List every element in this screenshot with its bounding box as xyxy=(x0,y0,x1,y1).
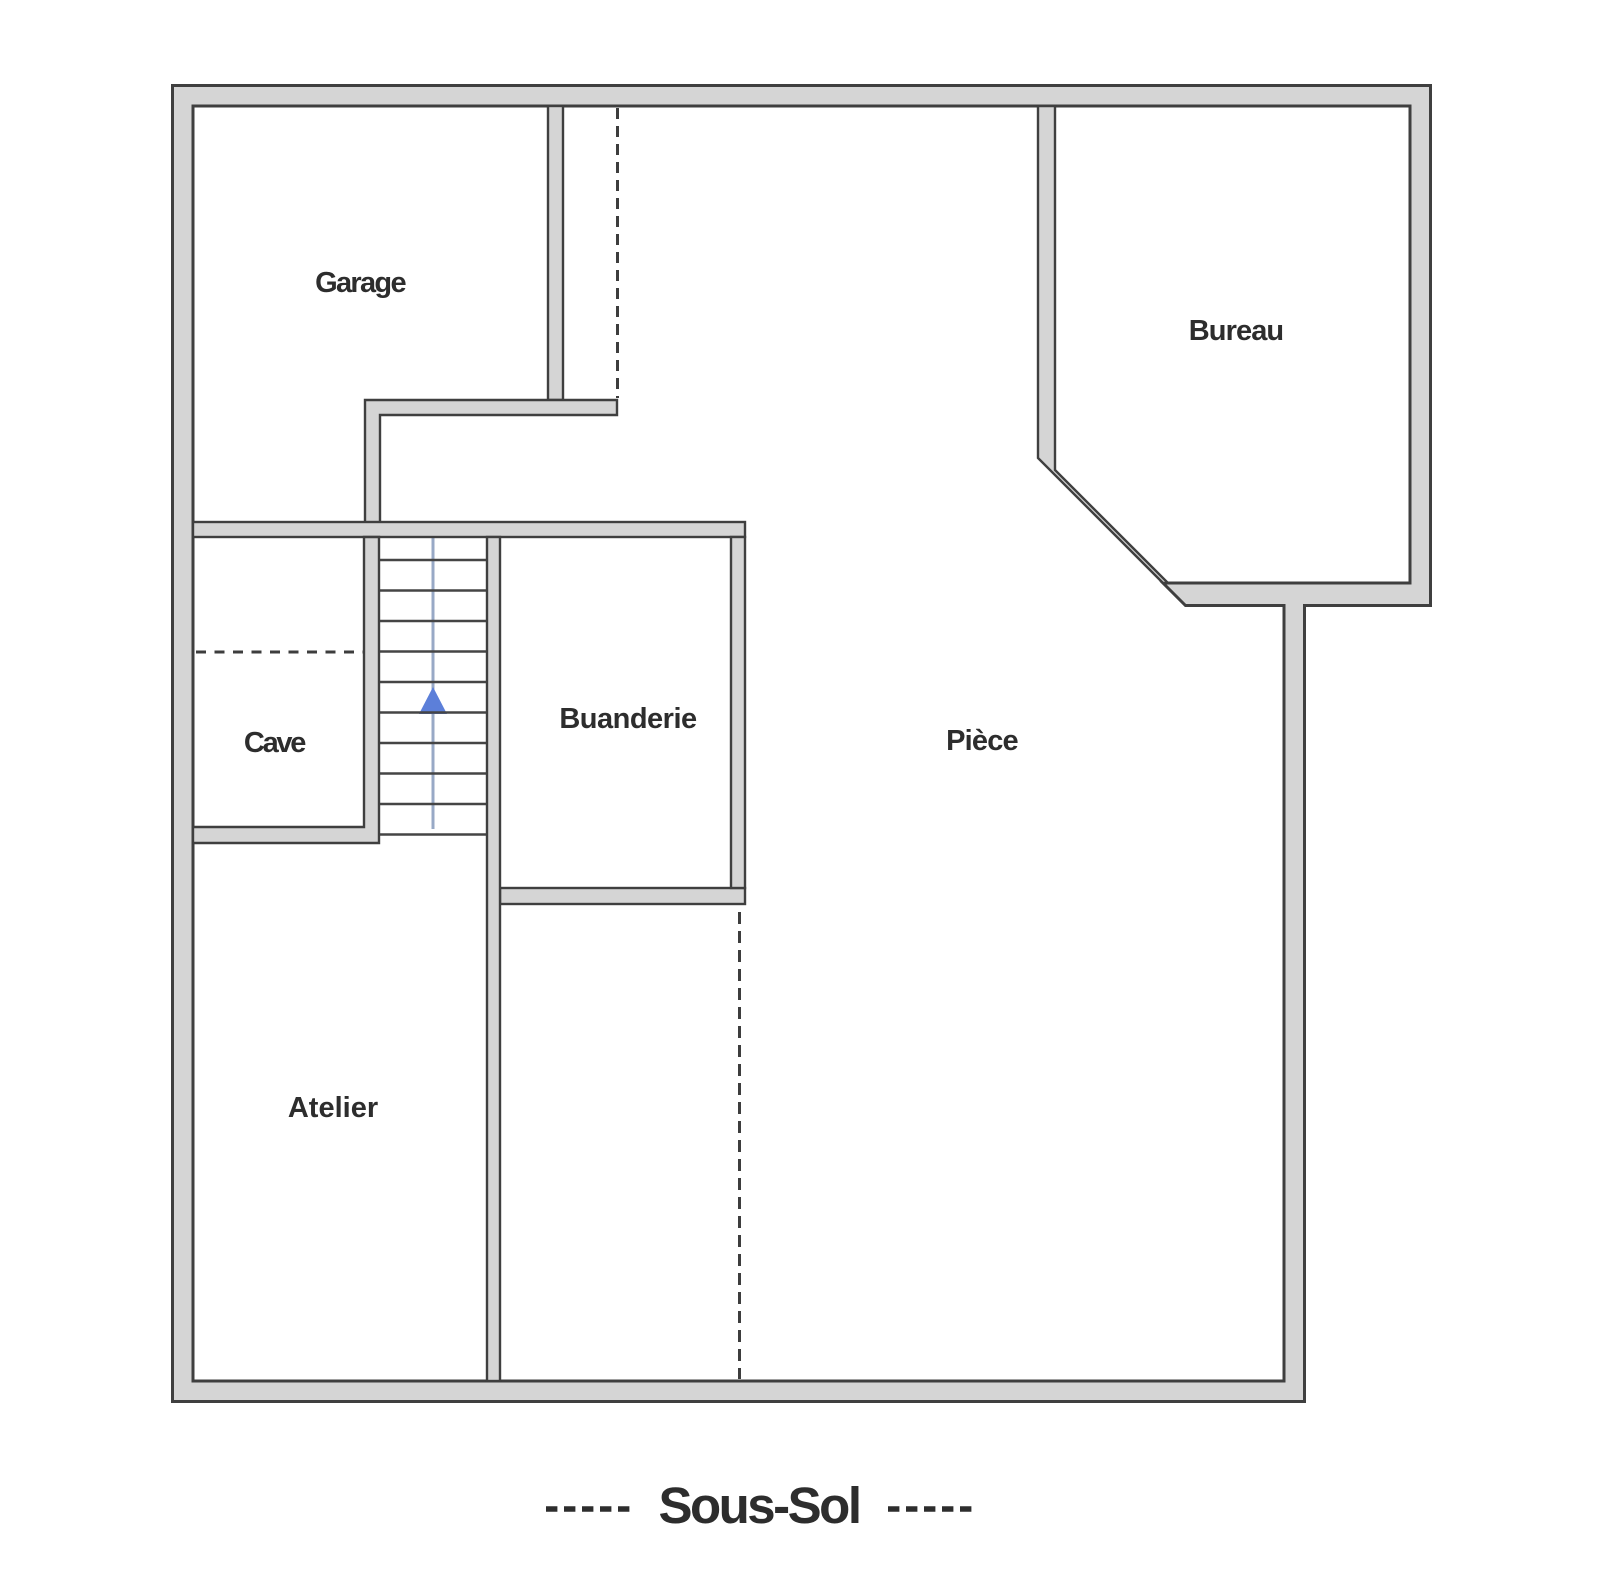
svg-text:Cave: Cave xyxy=(244,727,306,759)
svg-text:Bureau: Bureau xyxy=(1189,315,1284,347)
svg-text:Garage: Garage xyxy=(315,267,406,299)
svg-text:Atelier: Atelier xyxy=(288,1092,378,1124)
svg-text:Sous-Sol: Sous-Sol xyxy=(658,1477,859,1534)
svg-text:Buanderie: Buanderie xyxy=(559,703,697,735)
svg-text:Pièce: Pièce xyxy=(946,725,1018,757)
